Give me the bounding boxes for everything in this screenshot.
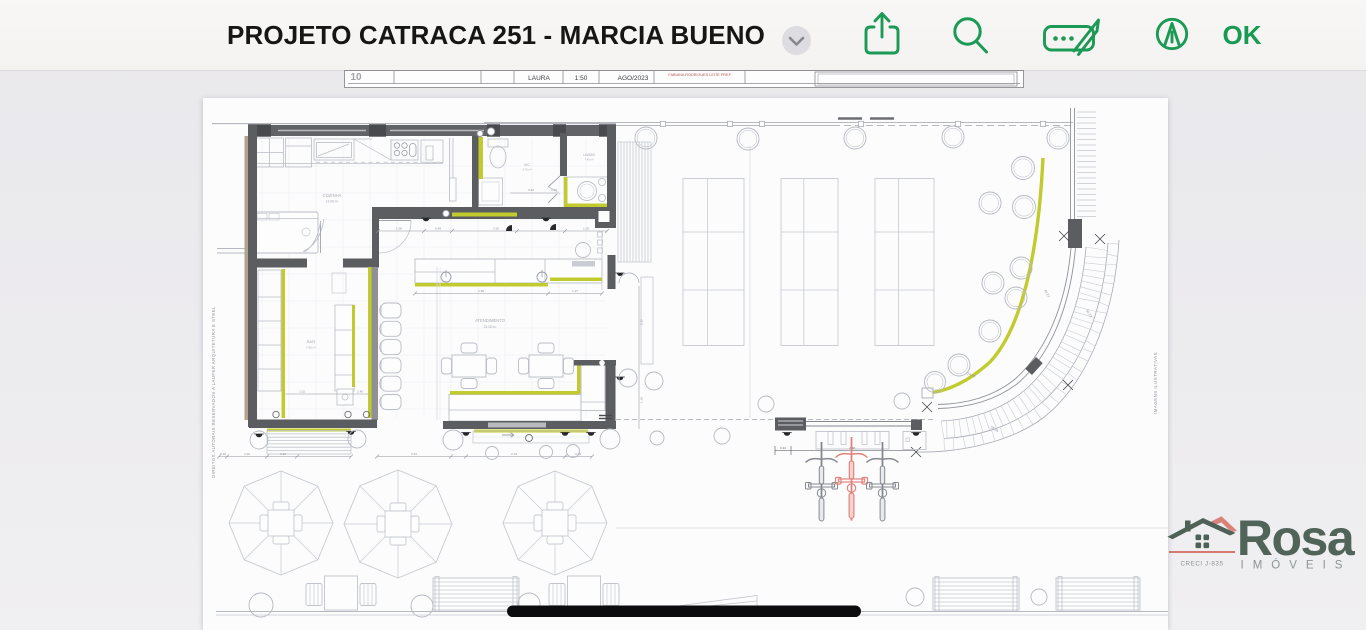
svg-text:1.00: 1.00 [396,227,402,231]
svg-text:10: 10 [350,72,362,83]
svg-text:WC: WC [524,163,530,167]
svg-text:ATENDIMENTO: ATENDIMENTO [475,318,506,323]
svg-text:0.34: 0.34 [780,446,786,450]
svg-text:LAVABO: LAVABO [583,153,596,157]
svg-text:IMAGENS ILUSTRATIVAS: IMAGENS ILUSTRATIVAS [1153,352,1158,414]
svg-text:2.55: 2.55 [493,227,499,231]
svg-text:2.99: 2.99 [478,289,484,293]
svg-text:AGO/2023: AGO/2023 [618,75,649,82]
svg-text:1.02: 1.02 [244,452,250,456]
svg-text:IMÓVEIS: IMÓVEIS [1241,559,1352,572]
svg-text:OK: OK [1223,20,1262,50]
svg-text:2.53: 2.53 [411,452,417,456]
svg-text:1.05: 1.05 [583,227,589,231]
svg-text:1.27: 1.27 [572,289,578,293]
svg-text:7.40 m²: 7.40 m² [584,158,593,162]
svg-text:23.08 m²: 23.08 m² [484,325,497,329]
svg-text:BAR: BAR [307,339,315,344]
svg-text:1.40: 1.40 [357,390,363,394]
svg-text:1:50: 1:50 [575,75,588,82]
svg-text:COZINHA: COZINHA [323,193,342,198]
svg-text:2.20: 2.20 [640,319,644,325]
svg-text:0.96: 0.96 [280,452,286,456]
svg-text:1.02: 1.02 [299,390,305,394]
svg-text:FABIANA RODRIGUES LEITE PREF.: FABIANA RODRIGUES LEITE PREF. [668,73,731,77]
svg-text:LAURA: LAURA [528,75,550,82]
svg-text:0.28: 0.28 [220,452,226,456]
svg-text:Rosa: Rosa [1237,510,1356,566]
svg-text:2.70 m²: 2.70 m² [522,168,531,172]
svg-text:13.08 m²: 13.08 m² [326,200,339,204]
svg-text:55.05: 55.05 [990,425,999,433]
svg-text:2.15: 2.15 [511,452,517,456]
svg-text:0.90: 0.90 [528,188,534,192]
svg-text:0.16: 0.16 [551,188,557,192]
svg-text:44.27: 44.27 [1043,289,1051,298]
svg-text:DIREITOS AUTORAIS RESERVADOS A: DIREITOS AUTORAIS RESERVADOS A LAUFER AR… [211,306,216,478]
svg-text:0.49: 0.49 [435,227,441,231]
svg-text:7.56 m²: 7.56 m² [306,346,316,350]
svg-text:1.16: 1.16 [640,397,644,403]
svg-text:CRECI J-835: CRECI J-835 [1180,561,1223,568]
